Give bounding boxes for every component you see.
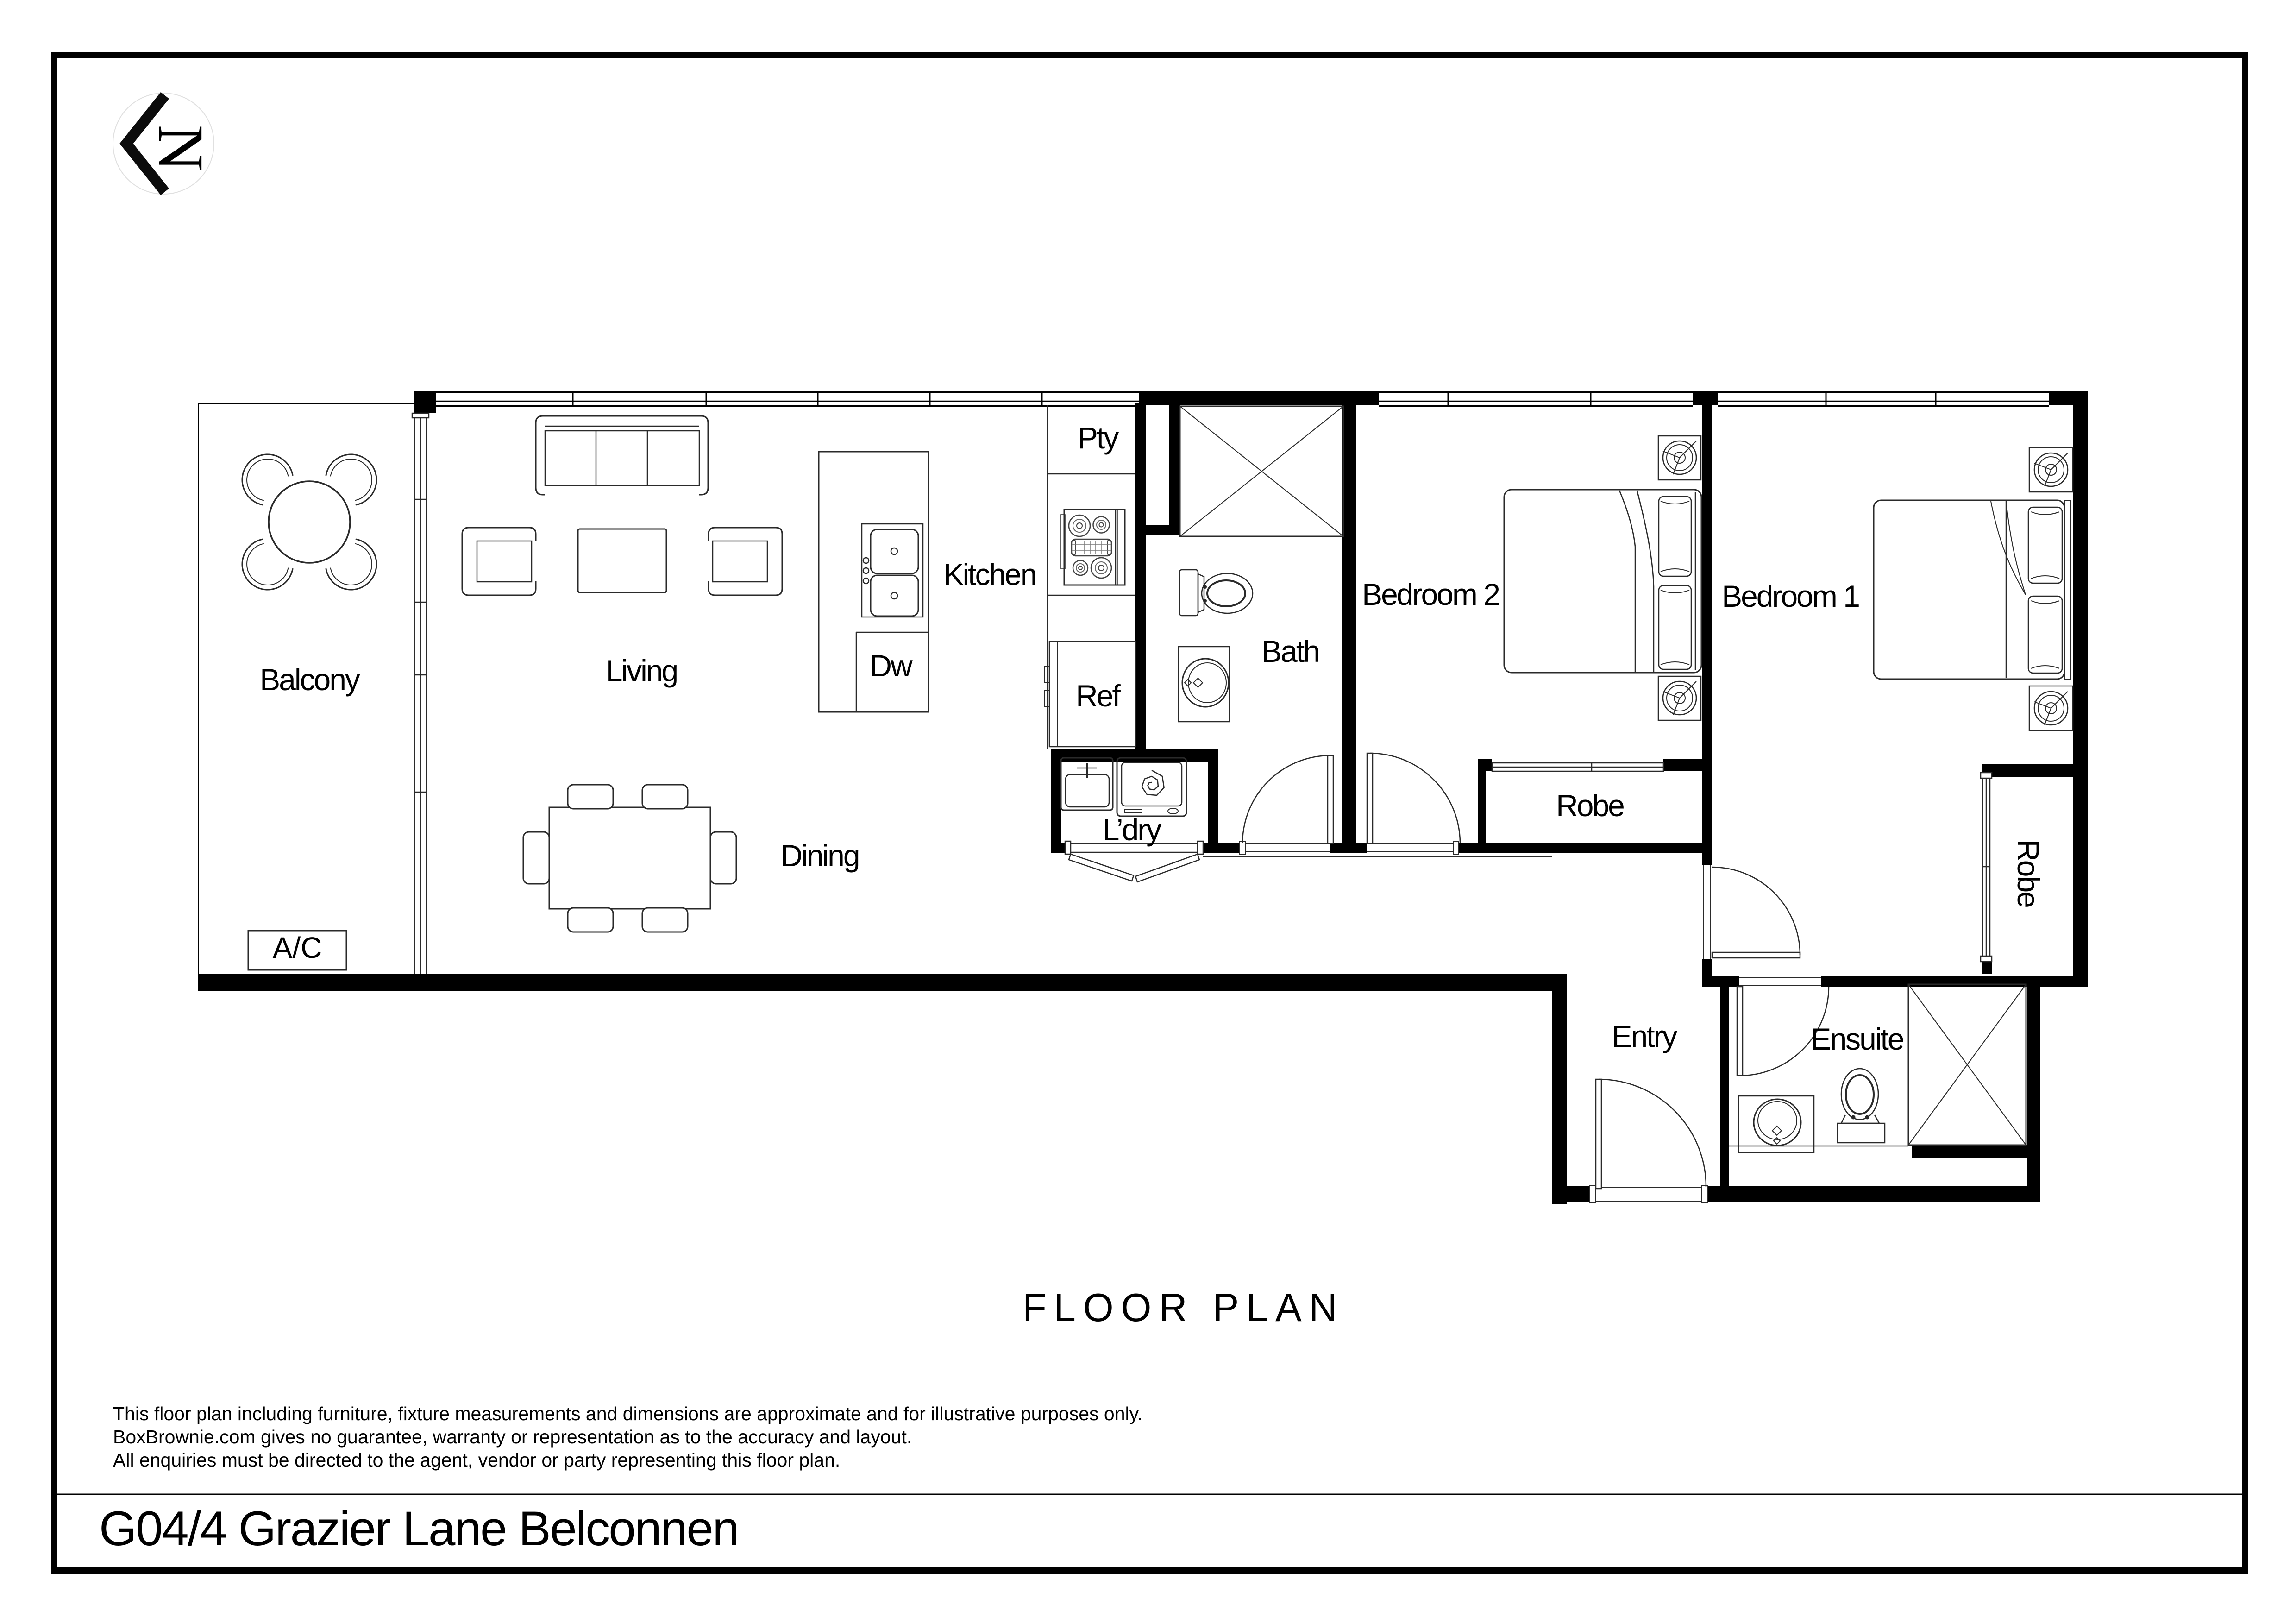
svg-text:Bath: Bath [1261, 634, 1319, 668]
svg-text:All enquiries must be directed: All enquiries must be directed to the ag… [113, 1449, 840, 1471]
svg-text:Dw: Dw [870, 648, 913, 683]
svg-text:Pty: Pty [1078, 421, 1119, 455]
svg-text:Robe: Robe [2011, 839, 2045, 907]
svg-text:Entry: Entry [1612, 1019, 1677, 1053]
svg-text:Bedroom 2: Bedroom 2 [1362, 577, 1499, 611]
svg-text:A/C: A/C [273, 931, 322, 964]
svg-text:Ref: Ref [1076, 679, 1121, 713]
svg-text:Dining: Dining [780, 838, 859, 873]
svg-text:N: N [145, 125, 217, 171]
svg-text:Kitchen: Kitchen [943, 557, 1035, 592]
svg-text:BoxBrownie.com gives no guaran: BoxBrownie.com gives no guarantee, warra… [113, 1426, 912, 1448]
svg-text:Bedroom 1: Bedroom 1 [1722, 579, 1859, 613]
svg-text:Living: Living [606, 654, 677, 688]
svg-text:Robe: Robe [1556, 788, 1624, 823]
svg-text:G04/4 Grazier Lane Belconnen: G04/4 Grazier Lane Belconnen [99, 1502, 738, 1556]
svg-text:L’dry: L’dry [1103, 812, 1161, 847]
svg-text:This floor plan including furn: This floor plan including furniture, fix… [113, 1403, 1142, 1424]
svg-text:Ensuite: Ensuite [1811, 1022, 1903, 1056]
svg-text:Balcony: Balcony [260, 662, 360, 697]
svg-text:FLOOR PLAN: FLOOR PLAN [1023, 1286, 1344, 1330]
